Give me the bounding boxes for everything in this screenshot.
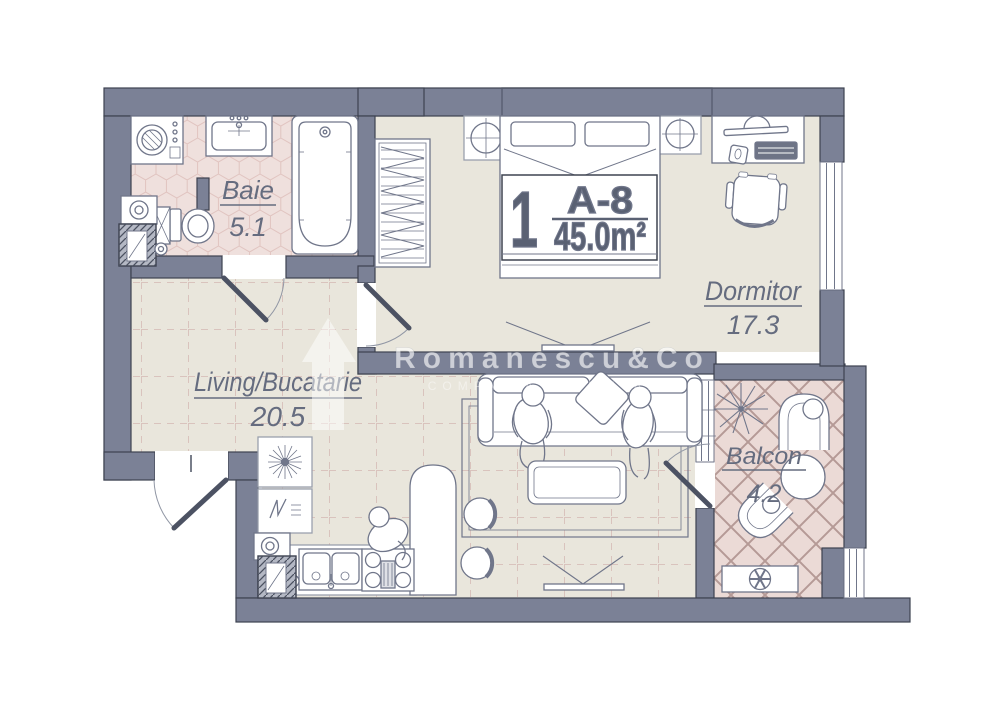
wall-entry-right: [228, 452, 262, 480]
wall-bedroom-east-bottom: [820, 290, 844, 366]
stool: [464, 498, 496, 530]
desk: [712, 116, 804, 164]
unit-number: 1: [510, 175, 538, 264]
room-area-baie: 5.1: [229, 212, 267, 242]
wall-entry-left: [104, 452, 155, 480]
toilet: [170, 209, 214, 243]
room-name-balcon: Balcon: [726, 443, 802, 470]
room-name-dormitor: Dormitor: [705, 276, 802, 306]
bathroom-sink: [206, 116, 272, 156]
stool: [461, 547, 493, 579]
wall-bath-stub: [197, 178, 209, 210]
kitchen-sink: [299, 549, 362, 590]
refrigerator: [410, 465, 456, 595]
unit-label-box: 1 A-8 45.0m²: [502, 175, 657, 264]
stove: [362, 549, 414, 591]
wall-top-pillar: [358, 88, 424, 116]
kitchen-shaft: [258, 556, 296, 598]
washing-machine: [131, 116, 183, 164]
bedroom-window: [820, 162, 842, 290]
watermark-subtitle: COMPANIA IMOBILIARA: [428, 379, 676, 393]
ac-unit: [722, 566, 798, 592]
kitchen-appliance-icon: [258, 489, 312, 533]
bathroom-door-opening: [223, 255, 285, 279]
balcony-chair: [779, 394, 829, 450]
bathtub: [292, 116, 358, 254]
coffee-table: [528, 461, 626, 504]
wall-top: [104, 88, 844, 116]
keyboard: [755, 142, 797, 159]
room-area-living: 20.5: [250, 401, 306, 432]
extractor-fan-icon: [258, 437, 312, 487]
unit-area: 45.0m²: [554, 215, 646, 259]
wall-bottom: [236, 598, 910, 622]
wall-balcony-se-stub: [822, 548, 844, 598]
room-area-dormitor: 17.3: [727, 310, 780, 340]
wardrobe: [375, 139, 430, 267]
wall-left: [104, 116, 131, 480]
wall-top-segment: [502, 88, 712, 116]
watermark-brand: Romanescu&Co: [394, 342, 710, 375]
room-area-balcon: 4.2: [747, 480, 782, 508]
wall-bedroom-west-top: [358, 266, 375, 283]
wall-balcony-east: [844, 366, 866, 548]
floor-drain-center: [159, 247, 164, 252]
plumbing-shaft: [119, 224, 156, 266]
wall-bath-bedroom: [358, 116, 375, 266]
floor-plan-drawing: 1 A-8 45.0m²: [0, 0, 988, 720]
floor-plan-page: 1 A-8 45.0m²: [0, 0, 988, 720]
wall-bedroom-east-top: [820, 116, 844, 162]
vanity-cabinet: [121, 196, 157, 224]
room-name-baie: Baie: [222, 175, 274, 205]
wall-partition-lower: [696, 508, 714, 598]
balcony-se-window: [844, 548, 864, 598]
ceiling-light-icon: [659, 116, 701, 154]
